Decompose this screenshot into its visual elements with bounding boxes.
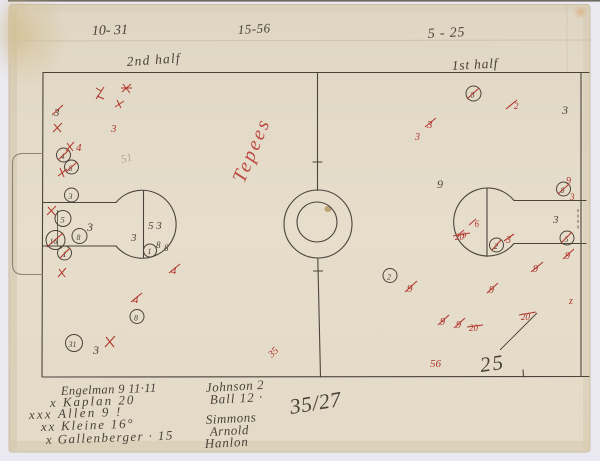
svg-text:9: 9 <box>437 177 443 191</box>
svg-text:10- 31: 10- 31 <box>92 23 129 39</box>
svg-text:8: 8 <box>164 243 169 253</box>
svg-text:3: 3 <box>110 123 117 135</box>
svg-text:9: 9 <box>566 176 571 187</box>
svg-text:3: 3 <box>86 220 93 234</box>
svg-text:8: 8 <box>134 314 138 323</box>
svg-text:5 3: 5 3 <box>148 220 162 232</box>
svg-text:15-56: 15-56 <box>237 20 271 37</box>
svg-text:20: 20 <box>455 232 465 242</box>
svg-text:3: 3 <box>130 232 137 244</box>
svg-text:20: 20 <box>469 323 479 333</box>
svg-text:2: 2 <box>514 101 519 111</box>
svg-text:3: 3 <box>561 103 568 117</box>
svg-text:31: 31 <box>68 340 77 349</box>
svg-text:5: 5 <box>61 215 65 225</box>
svg-text:8: 8 <box>156 240 161 250</box>
svg-text:56: 56 <box>430 358 442 370</box>
svg-text:z: z <box>568 296 573 307</box>
svg-text:8: 8 <box>77 233 81 242</box>
svg-text:Hanlon: Hanlon <box>203 434 249 451</box>
svg-text:3: 3 <box>414 132 420 143</box>
svg-text:25: 25 <box>478 350 506 377</box>
svg-text:1st half: 1st half <box>451 56 500 73</box>
svg-text:3: 3 <box>68 192 73 201</box>
svg-text:6: 6 <box>475 219 480 229</box>
svg-text:3: 3 <box>92 343 99 357</box>
svg-text:5 - 25: 5 - 25 <box>427 25 465 42</box>
svg-text:3: 3 <box>552 214 559 226</box>
svg-text:Ball 12 ·: Ball 12 · <box>209 389 263 407</box>
svg-text:2: 2 <box>387 273 391 282</box>
svg-text:4: 4 <box>76 142 82 154</box>
svg-text:3: 3 <box>569 192 575 202</box>
svg-text:1: 1 <box>148 247 152 256</box>
